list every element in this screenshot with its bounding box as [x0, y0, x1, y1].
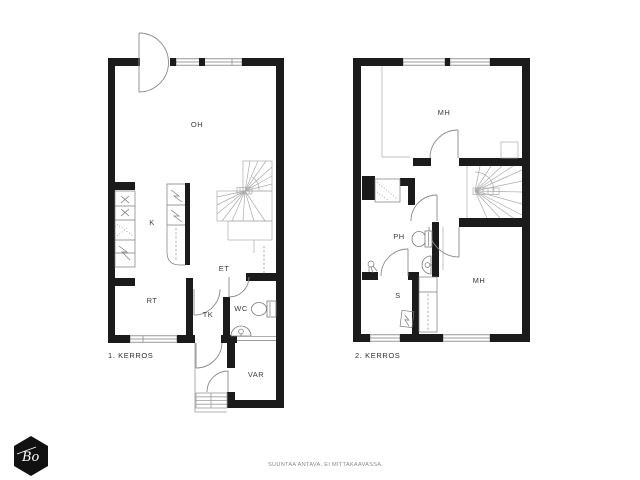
room-label-var: VAR	[248, 370, 264, 379]
room-label-mh-lower: MH	[473, 276, 486, 285]
entry-steps	[196, 393, 227, 408]
room-label-ph: PH	[393, 232, 404, 241]
room-label-s: S	[395, 291, 401, 300]
room-label-mh-top: MH	[438, 108, 451, 117]
toilet-icon	[252, 301, 277, 317]
staircase	[467, 166, 522, 218]
floor1-title: 1. KERROS	[108, 351, 153, 360]
sauna-stove-icon	[400, 310, 414, 327]
room-label-rt: RT	[147, 296, 158, 305]
var-door-arc	[207, 371, 228, 392]
sink-icon	[231, 326, 251, 336]
bedroom-door-arc	[430, 130, 458, 158]
brand-logo: Bo	[14, 436, 48, 476]
floorplan-drawing: OH K ET RT TK WC VAR 1. KERROS	[0, 0, 640, 480]
floor2-plan: MH PH S MH 2. KERROS	[353, 58, 530, 360]
logo-text: Bo	[21, 450, 40, 465]
floor2-walls	[353, 58, 530, 342]
terrace-door-arc	[196, 343, 222, 368]
shower-head-icon	[368, 261, 377, 273]
kitchen-island	[167, 184, 185, 265]
room-label-tk: TK	[203, 310, 214, 319]
kitchen-counter	[115, 191, 135, 267]
sauna-door-arc	[381, 249, 408, 276]
room-label-oh: OH	[191, 120, 203, 129]
staircase	[217, 161, 272, 274]
room-label-wc: WC	[234, 304, 248, 313]
floor2-title: 2. KERROS	[355, 351, 400, 360]
toilet-icon	[412, 231, 432, 247]
floor1-plan: OH K ET RT TK WC VAR 1. KERROS	[108, 33, 284, 412]
room-label-et: ET	[219, 264, 230, 273]
room-label-k: K	[149, 218, 155, 227]
floorplan-page: OH K ET RT TK WC VAR 1. KERROS	[0, 0, 640, 480]
floor2-windows	[370, 59, 490, 341]
sink-icon	[422, 256, 432, 274]
entrance-door-arc	[139, 33, 168, 92]
disclaimer-text: SUUNTAA ANTAVA, EI MITTAKAAVASSA.	[268, 462, 383, 468]
wardrobe	[419, 277, 437, 332]
shower-icon	[375, 179, 400, 202]
